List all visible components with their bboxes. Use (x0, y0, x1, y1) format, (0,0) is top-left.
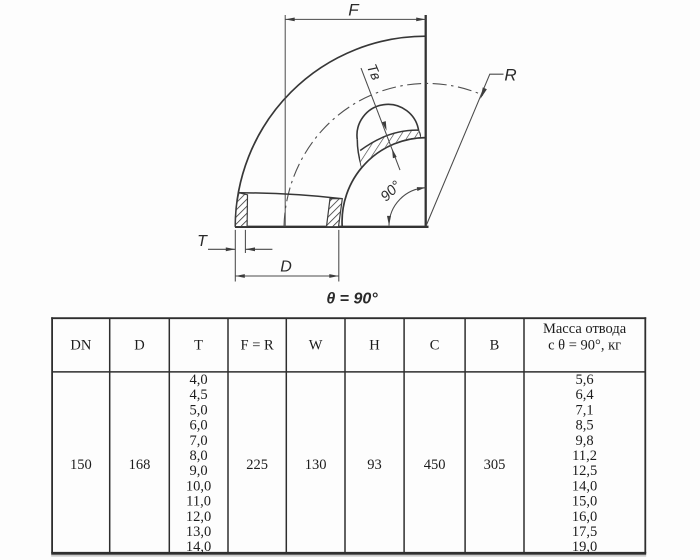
svg-text:17,5: 17,5 (572, 524, 597, 540)
svg-text:130: 130 (305, 457, 327, 473)
svg-text:8,0: 8,0 (190, 448, 208, 464)
svg-text:4,0: 4,0 (190, 372, 208, 388)
svg-text:B: B (490, 338, 500, 354)
svg-text:93: 93 (367, 457, 382, 473)
svg-text:12,0: 12,0 (186, 509, 211, 525)
svg-text:Масса отвода: Масса отвода (543, 321, 627, 337)
svg-text:19,0: 19,0 (572, 539, 597, 555)
svg-text:F = R: F = R (241, 338, 274, 354)
svg-text:11,2: 11,2 (572, 448, 597, 464)
svg-text:11,0: 11,0 (186, 494, 211, 510)
svg-text:225: 225 (246, 457, 268, 473)
svg-text:W: W (309, 338, 323, 354)
svg-text:9,0: 9,0 (190, 463, 208, 479)
svg-text:168: 168 (129, 457, 151, 473)
svg-text:12,5: 12,5 (572, 463, 597, 479)
svg-text:6,0: 6,0 (190, 418, 208, 434)
svg-text:14,0: 14,0 (186, 539, 211, 555)
svg-text:5,6: 5,6 (576, 372, 594, 388)
svg-text:305: 305 (484, 457, 506, 473)
svg-text:C: C (430, 338, 440, 354)
svg-text:DN: DN (70, 338, 91, 354)
svg-text:H: H (369, 338, 380, 354)
svg-text:10,0: 10,0 (186, 478, 211, 494)
svg-text:150: 150 (70, 457, 92, 473)
svg-text:9,8: 9,8 (576, 433, 594, 449)
svg-text:T: T (194, 338, 203, 354)
svg-text:7,1: 7,1 (576, 402, 594, 418)
svg-text:θ = 90°: θ = 90° (326, 291, 378, 308)
svg-text:15,0: 15,0 (572, 494, 597, 510)
svg-text:4,5: 4,5 (190, 387, 208, 403)
svg-text:F: F (348, 1, 360, 20)
svg-text:D: D (134, 338, 144, 354)
svg-text:8,5: 8,5 (576, 418, 594, 434)
svg-text:13,0: 13,0 (186, 524, 211, 540)
svg-text:T: T (197, 233, 208, 250)
svg-text:16,0: 16,0 (572, 509, 597, 525)
svg-text:5,0: 5,0 (190, 402, 208, 418)
svg-text:7,0: 7,0 (190, 433, 208, 449)
svg-text:90°: 90° (378, 178, 405, 205)
svg-text:450: 450 (424, 457, 446, 473)
svg-text:R: R (504, 66, 516, 85)
svg-text:Tв: Tв (364, 61, 385, 82)
svg-text:с θ = 90°, кг: с θ = 90°, кг (548, 338, 621, 354)
svg-text:14,0: 14,0 (572, 478, 597, 494)
svg-text:D: D (280, 259, 292, 276)
svg-text:6,4: 6,4 (576, 387, 595, 403)
